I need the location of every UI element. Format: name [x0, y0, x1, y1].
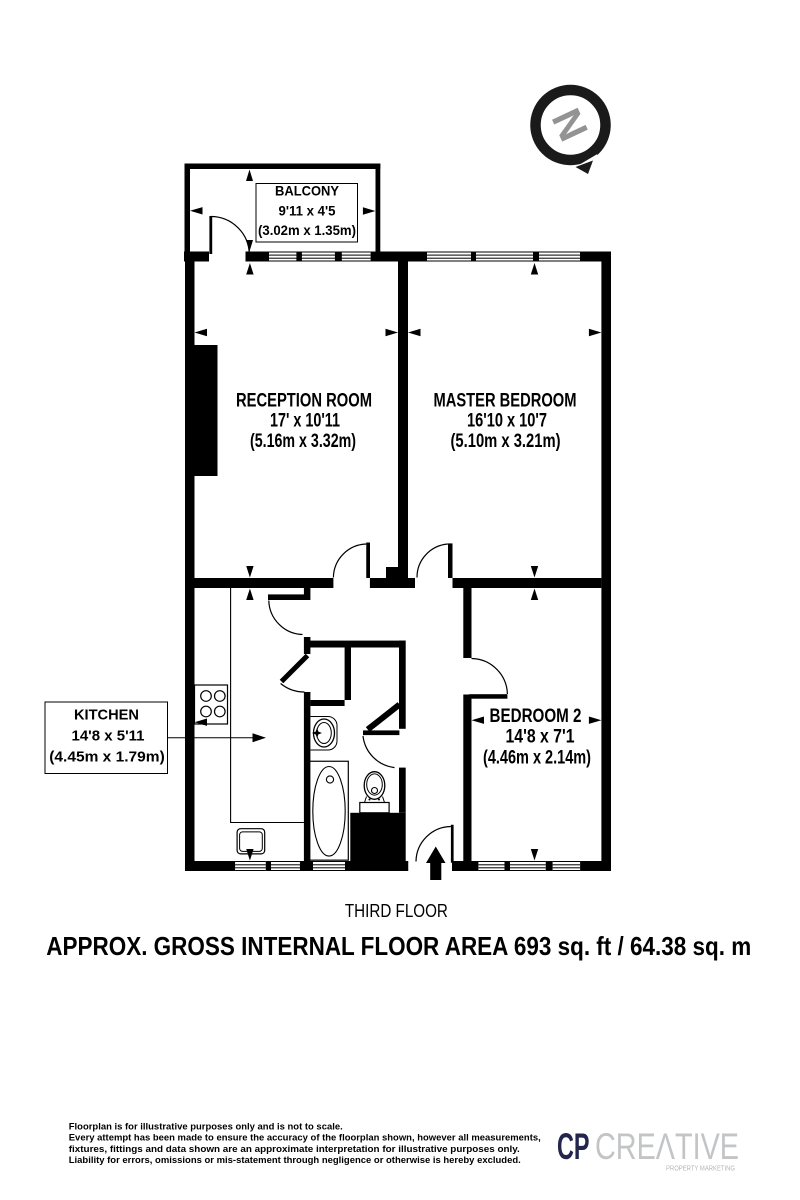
svg-text:CREΛTIVE: CREΛTIVE	[595, 1126, 739, 1167]
svg-text:(3.02m x 1.35m): (3.02m x 1.35m)	[258, 222, 356, 238]
svg-text:KITCHEN: KITCHEN	[74, 706, 139, 723]
svg-text:14'8 x 7'1: 14'8 x 7'1	[506, 726, 575, 747]
svg-text:Every attempt has been made to: Every attempt has been made to ensure th…	[69, 1133, 541, 1144]
svg-text:MASTER BEDROOM: MASTER BEDROOM	[434, 391, 577, 412]
svg-text:Floorplan is for illustrative: Floorplan is for illustrative purposes o…	[69, 1121, 343, 1132]
svg-text:Liability for errors, omission: Liability for errors, omissions or mis-s…	[69, 1155, 521, 1166]
svg-text:(5.16m x 3.32m): (5.16m x 3.32m)	[250, 431, 356, 452]
svg-text:14'8 x 5'11: 14'8 x 5'11	[72, 727, 145, 744]
svg-text:APPROX. GROSS INTERNAL FLOOR A: APPROX. GROSS INTERNAL FLOOR AREA 693 sq…	[46, 931, 751, 961]
svg-text:THIRD FLOOR: THIRD FLOOR	[345, 901, 448, 921]
svg-text:BEDROOM 2: BEDROOM 2	[490, 706, 582, 727]
svg-text:CP: CP	[557, 1126, 590, 1167]
svg-text:17' x 10'11: 17' x 10'11	[270, 411, 340, 432]
svg-text:9'11 x 4'5: 9'11 x 4'5	[279, 203, 336, 219]
svg-text:PROPERTY MARKETING: PROPERTY MARKETING	[666, 1164, 735, 1173]
svg-text:(5.10m x 3.21m): (5.10m x 3.21m)	[451, 431, 561, 452]
svg-text:fixtures, fittings and data sh: fixtures, fittings and data shown are an…	[69, 1144, 520, 1155]
svg-text:RECEPTION ROOM: RECEPTION ROOM	[236, 391, 372, 412]
svg-text:BALCONY: BALCONY	[275, 183, 340, 199]
svg-text:16'10 x 10'7: 16'10 x 10'7	[467, 411, 547, 432]
svg-text:(4.46m x 2.14m): (4.46m x 2.14m)	[483, 747, 591, 768]
svg-text:(4.45m x 1.79m): (4.45m x 1.79m)	[49, 749, 165, 766]
